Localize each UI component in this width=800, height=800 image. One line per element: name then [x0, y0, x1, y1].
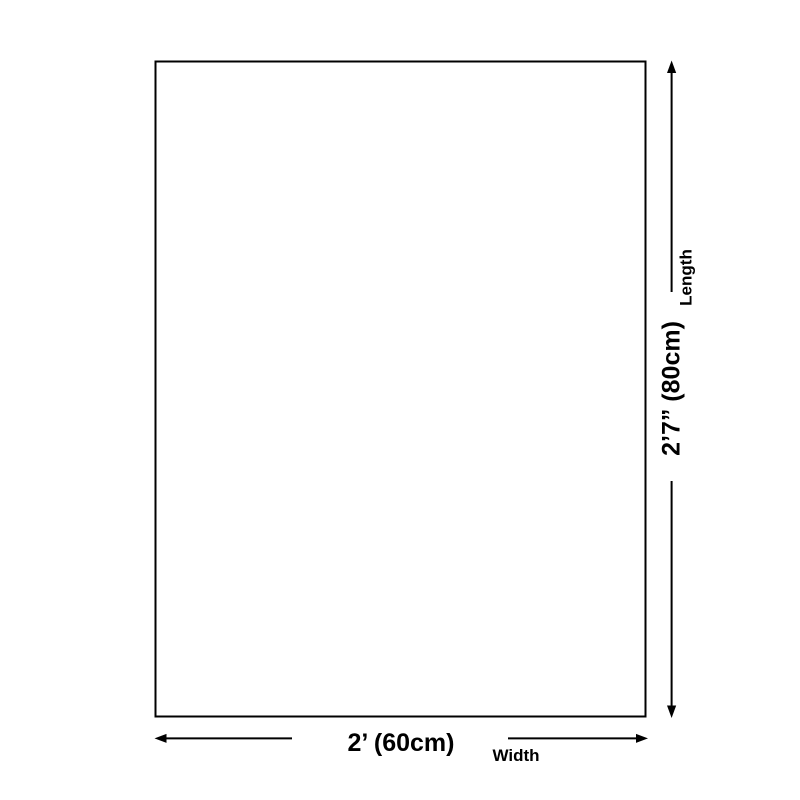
svg-text:2’ (60cm): 2’ (60cm) — [347, 729, 454, 757]
svg-text:Length: Length — [677, 249, 696, 306]
svg-text:Width: Width — [493, 746, 540, 765]
svg-text:2’7” (80cm): 2’7” (80cm) — [658, 321, 686, 456]
